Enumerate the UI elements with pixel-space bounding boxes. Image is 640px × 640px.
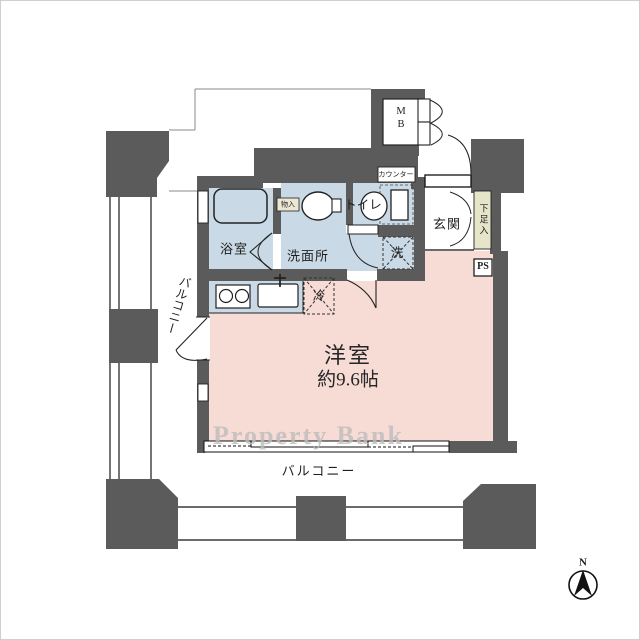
closet-label: 物入 [281,202,295,209]
front-door-swing-arc [448,135,471,174]
bathroom-label: 浴室 [220,243,248,256]
wall-mid-left [197,269,347,281]
entrance-label: 玄関 [433,218,461,231]
main-room-size-label: 約9.6帖 [317,371,379,390]
balcony-south-label: バルコニー [282,465,357,478]
toilet-label: トイレ [344,199,382,212]
watermark: Property Bank [213,421,404,451]
toilet-door [348,225,378,234]
pillar-bottom-middle [296,496,346,541]
wall-mb-left [371,101,383,148]
pillar-top-left [106,131,169,197]
mb-door-arc-top [430,100,442,123]
pillar-bottom-left [106,479,178,549]
wall-toilet-bottom [378,225,416,237]
floorplan-drawing [1,1,639,639]
pillar-west-mid [109,309,158,363]
washbasin-tap-icon [332,199,341,212]
balcony-door-opening [196,317,210,360]
meter-box-label-m: M [396,107,405,118]
meter-box-label-b: B [397,120,404,131]
toilet-tank-icon [391,190,408,220]
bathroom-floor [209,188,273,269]
shoe-cabinet-door-arc-top [450,192,471,214]
fridge-label: 冷 [313,290,326,303]
west-window-room [198,384,208,401]
shoe-cabinet-label: 下足入 [479,204,488,237]
front-door [425,175,471,187]
wall-right-upper [490,193,501,254]
mb-door-leaf-top [418,99,430,122]
floorplan: 洋室 約9.6帖 浴室 洗面所 トイレ 玄関 バルコニー バルコニー 下足入 カ… [0,0,640,640]
west-window-bathroom [198,191,208,223]
washer-label: 洗 [391,247,404,260]
washroom-corridor-floor [346,233,378,271]
pillar-bottom-right [463,484,536,549]
mb-door-arc-bottom [430,123,442,145]
wall-bottom-right [449,441,517,453]
pipe-space-label: PS [477,262,489,272]
wall-toilet-genkan [414,183,425,281]
mb-door-leaf-bottom [418,122,430,145]
main-room-label: 洋室 [324,345,372,367]
counter-label: カウンター [379,172,414,179]
wall-right-main [493,251,508,443]
north-compass [569,570,597,599]
pillar-top-right [471,139,524,193]
sink-icon [258,284,298,307]
compass-north-label: N [579,558,587,569]
washbasin-icon [302,192,334,220]
washroom-label: 洗面所 [287,250,329,263]
